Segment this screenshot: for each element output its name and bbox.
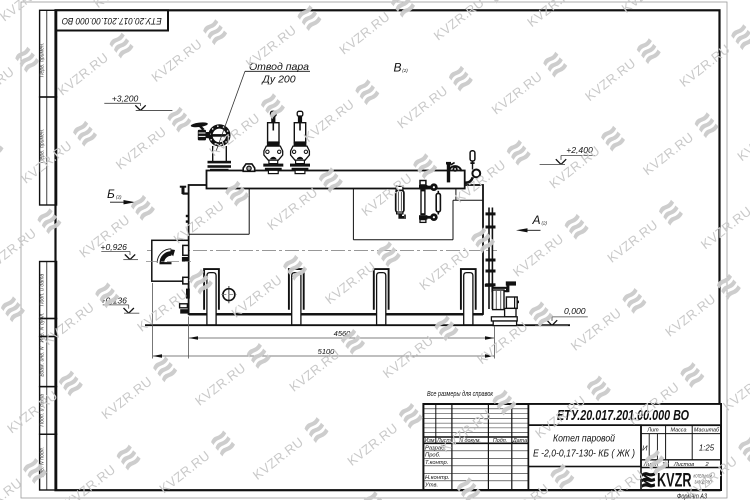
svg-text:KVZR.RU: KVZR.RU <box>734 115 750 164</box>
svg-text:KVZR.RU: KVZR.RU <box>720 365 750 414</box>
svg-text:KVZR.RU: KVZR.RU <box>301 96 357 145</box>
svg-text:(2): (2) <box>116 195 122 200</box>
svg-text:Проб.: Проб. <box>425 453 441 459</box>
svg-text:+3,200: +3,200 <box>112 94 139 104</box>
svg-text:KVZR.RU: KVZR.RU <box>41 299 97 348</box>
svg-text:Б: Б <box>107 187 115 201</box>
svg-text:KVZR.RU: KVZR.RU <box>582 55 638 104</box>
svg-text:Подп. и дата: Подп. и дата <box>40 274 46 307</box>
svg-text:Подп.: Подп. <box>493 438 507 444</box>
svg-text:KVZR.RU: KVZR.RU <box>286 346 342 395</box>
svg-text:KVZR.RU: KVZR.RU <box>510 231 566 280</box>
svg-text:KVZR.RU: KVZR.RU <box>489 69 545 118</box>
svg-text:KVZR.RU: KVZR.RU <box>0 0 53 24</box>
svg-text:Масса: Масса <box>671 428 687 434</box>
svg-text:KVZR.RU: KVZR.RU <box>380 332 436 381</box>
svg-text:KVZR.RU: KVZR.RU <box>192 360 248 409</box>
svg-text:Взам. инв. N: Взам. инв. N <box>40 346 46 376</box>
svg-text:KVZR.RU: KVZR.RU <box>698 203 750 252</box>
svg-text:KVZR.RU: KVZR.RU <box>0 225 39 274</box>
svg-text:Т.контр.: Т.контр. <box>425 460 448 466</box>
svg-text:Утв.: Утв. <box>424 483 438 489</box>
svg-text:А: А <box>532 213 541 227</box>
svg-text:Дата: Дата <box>512 438 527 444</box>
svg-text:KVZR.RU: KVZR.RU <box>677 41 733 90</box>
svg-text:KVZR.RU: KVZR.RU <box>431 0 487 43</box>
svg-text:KVZR.RU: KVZR.RU <box>524 0 580 30</box>
svg-text:Е -2,0-0,17-130- КБ ( ЖК ): Е -2,0-0,17-130- КБ ( ЖК ) <box>533 449 635 460</box>
svg-text:В: В <box>394 61 402 75</box>
svg-text:Лит: Лит <box>646 428 659 434</box>
svg-text:KVZR.RU: KVZR.RU <box>336 9 392 58</box>
svg-text:Ду 200: Ду 200 <box>261 74 295 86</box>
svg-text:KVZR.RU: KVZR.RU <box>55 50 111 99</box>
svg-text:(2): (2) <box>542 221 548 226</box>
svg-text:Изм: Изм <box>425 438 435 444</box>
svg-text:И: И <box>642 444 648 453</box>
svg-text:KVZR.RU: KVZR.RU <box>76 212 132 261</box>
svg-text:Перв. примен.: Перв. примен. <box>40 43 46 77</box>
svg-text:Листов: Листов <box>673 462 694 468</box>
svg-text:KVZR.RU: KVZR.RU <box>4 388 60 437</box>
svg-text:ЕТУ.20.017.201.00.000 ВО: ЕТУ.20.017.201.00.000 ВО <box>61 15 162 26</box>
svg-text:Масштаб: Масштаб <box>694 428 720 434</box>
svg-text:KVZR.RU: KVZR.RU <box>62 462 118 500</box>
svg-text:Котел паровой: Котел паровой <box>553 434 615 445</box>
svg-text:0,000: 0,000 <box>564 306 586 316</box>
svg-text:KVZR.RU: KVZR.RU <box>113 124 169 173</box>
svg-text:Все размеры для справок: Все размеры для справок <box>427 389 493 398</box>
svg-text:KVZR.RU: KVZR.RU <box>394 83 450 132</box>
svg-text:KVZR.RU: KVZR.RU <box>149 36 205 85</box>
svg-text:KVZR.RU: KVZR.RU <box>604 217 660 266</box>
svg-text:(2): (2) <box>402 68 408 73</box>
svg-text:Н.контр.: Н.контр. <box>425 475 450 481</box>
svg-text:KVZR.RU: KVZR.RU <box>640 129 696 178</box>
svg-text:KVZR.RU: KVZR.RU <box>662 291 718 340</box>
svg-text:KVZR.RU: KVZR.RU <box>99 373 155 422</box>
svg-text:KVZR.RU: KVZR.RU <box>0 313 3 362</box>
svg-text:1:25: 1:25 <box>699 444 715 453</box>
svg-text:KVZR.RU: KVZR.RU <box>156 448 212 497</box>
svg-text:KVZR.RU: KVZR.RU <box>250 434 306 483</box>
svg-text:KVZR.RU: KVZR.RU <box>344 420 400 469</box>
svg-text:KVZR.RU: KVZR.RU <box>0 64 17 113</box>
